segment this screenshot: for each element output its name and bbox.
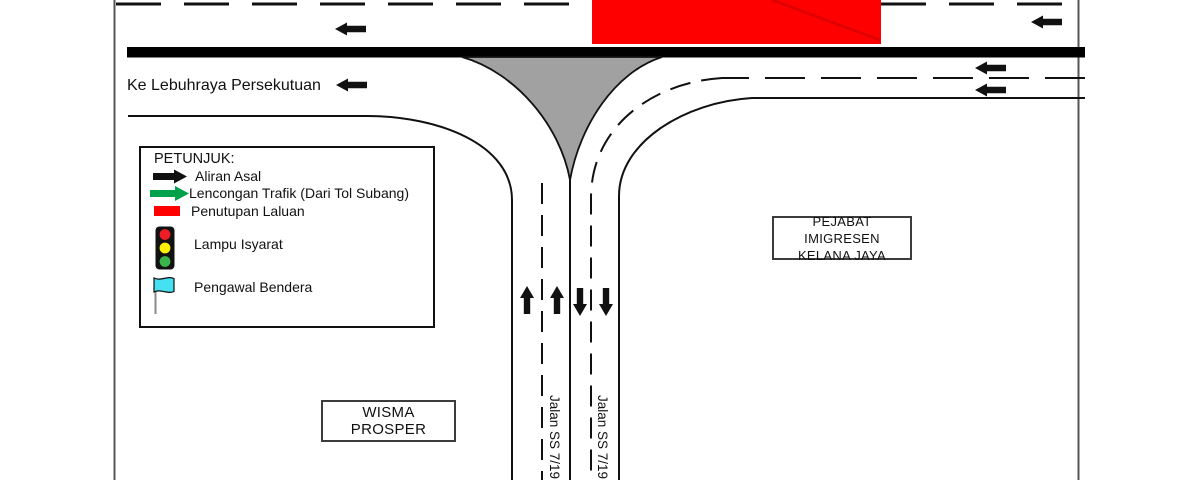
legend-item-aliran-asal: Aliran Asal <box>195 168 261 184</box>
flow-arrow-west-lane2 <box>975 84 1006 97</box>
legend-title: PETUNJUK: <box>154 151 235 167</box>
immigration-office-line1: PEJABAT IMIGRESEN <box>774 213 910 247</box>
road-name-right: Jalan SS 7/19 <box>595 393 610 481</box>
green-arrow-shape <box>150 186 189 201</box>
legend-item-penutupan-laluan: Penutupan Laluan <box>191 203 305 219</box>
traffic-light-icon <box>155 226 175 270</box>
flow-arrow-west-top-right <box>1031 16 1062 29</box>
wisma-prosper-label: WISMA PROSPER <box>323 404 454 438</box>
immigration-office-box: PEJABAT IMIGRESEN KELANA JAYA <box>772 216 912 260</box>
turn-lane-divider-dashed <box>591 78 722 480</box>
legend-box: PETUNJUK: Aliran Asal Lencongan Trafik (… <box>139 146 435 328</box>
closure-swatch-shape <box>154 206 180 216</box>
flow-arrow-north-lane2 <box>550 286 564 314</box>
traffic-light-green <box>160 256 171 267</box>
traffic-light-red <box>160 229 171 240</box>
traffic-diversion-plan: Ke Lebuhraya Persekutuan PEJABAT IMIGRES… <box>0 0 1200 480</box>
flow-arrow-west-top-left <box>335 23 366 36</box>
legend-item-pengawal-bendera: Pengawal Bendera <box>194 279 312 295</box>
flag-icon <box>153 276 177 316</box>
legend-item-lencongan-trafik: Lencongan Trafik (Dari Tol Subang) <box>189 185 409 201</box>
flow-arrow-north-lane1 <box>520 286 534 314</box>
green-arrow-icon <box>149 185 191 202</box>
immigration-office-line2: KELANA JAYA <box>798 247 886 264</box>
wisma-prosper-box: WISMA PROSPER <box>321 400 456 442</box>
legend-item-lampu-isyarat: Lampu Isyarat <box>194 236 283 252</box>
road-closure-block <box>592 0 881 44</box>
closure-swatch-icon <box>154 206 180 216</box>
road-name-left: Jalan SS 7/19 <box>547 393 562 481</box>
black-arrow-shape <box>153 170 187 184</box>
east-corner-road-edge <box>619 98 1085 480</box>
traffic-light-yellow <box>160 243 171 254</box>
flow-arrow-to-federal-highway <box>336 79 367 92</box>
flow-arrow-south-lane2 <box>599 288 613 316</box>
flow-arrow-south-lane1 <box>573 288 587 316</box>
to-federal-highway-label: Ke Lebuhraya Persekutuan <box>127 77 321 95</box>
flow-arrow-west-lane1 <box>975 62 1006 75</box>
gore-island <box>462 57 662 180</box>
median-bar <box>127 47 1085 58</box>
black-arrow-icon <box>151 168 189 185</box>
flag-banner <box>154 278 174 293</box>
